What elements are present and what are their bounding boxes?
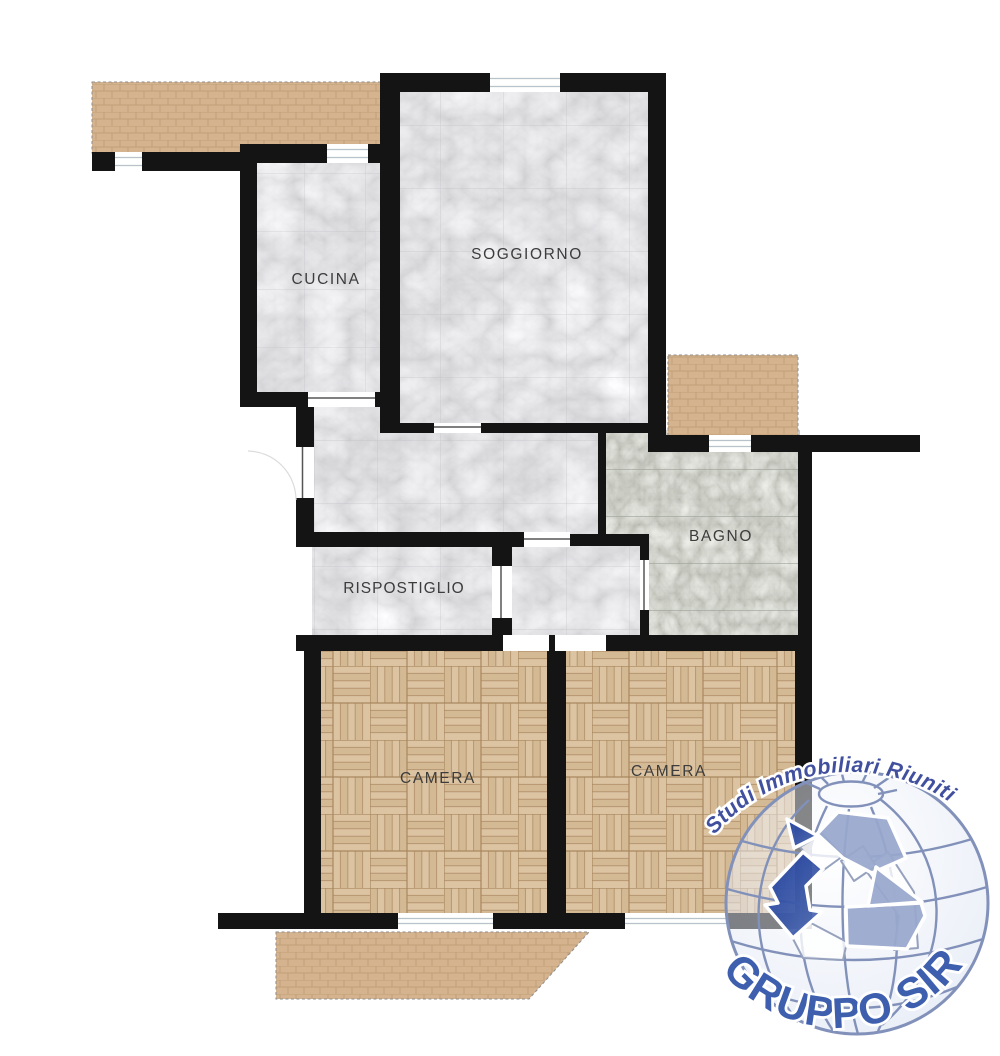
svg-text:BAGNO: BAGNO [689, 528, 753, 545]
svg-text:RISPOSTIGLIO: RISPOSTIGLIO [343, 580, 464, 597]
svg-text:SOGGIORNO: SOGGIORNO [471, 246, 583, 263]
svg-text:CUCINA: CUCINA [291, 271, 360, 288]
svg-text:CAMERA: CAMERA [400, 770, 476, 787]
svg-text:CAMERA: CAMERA [631, 763, 707, 780]
